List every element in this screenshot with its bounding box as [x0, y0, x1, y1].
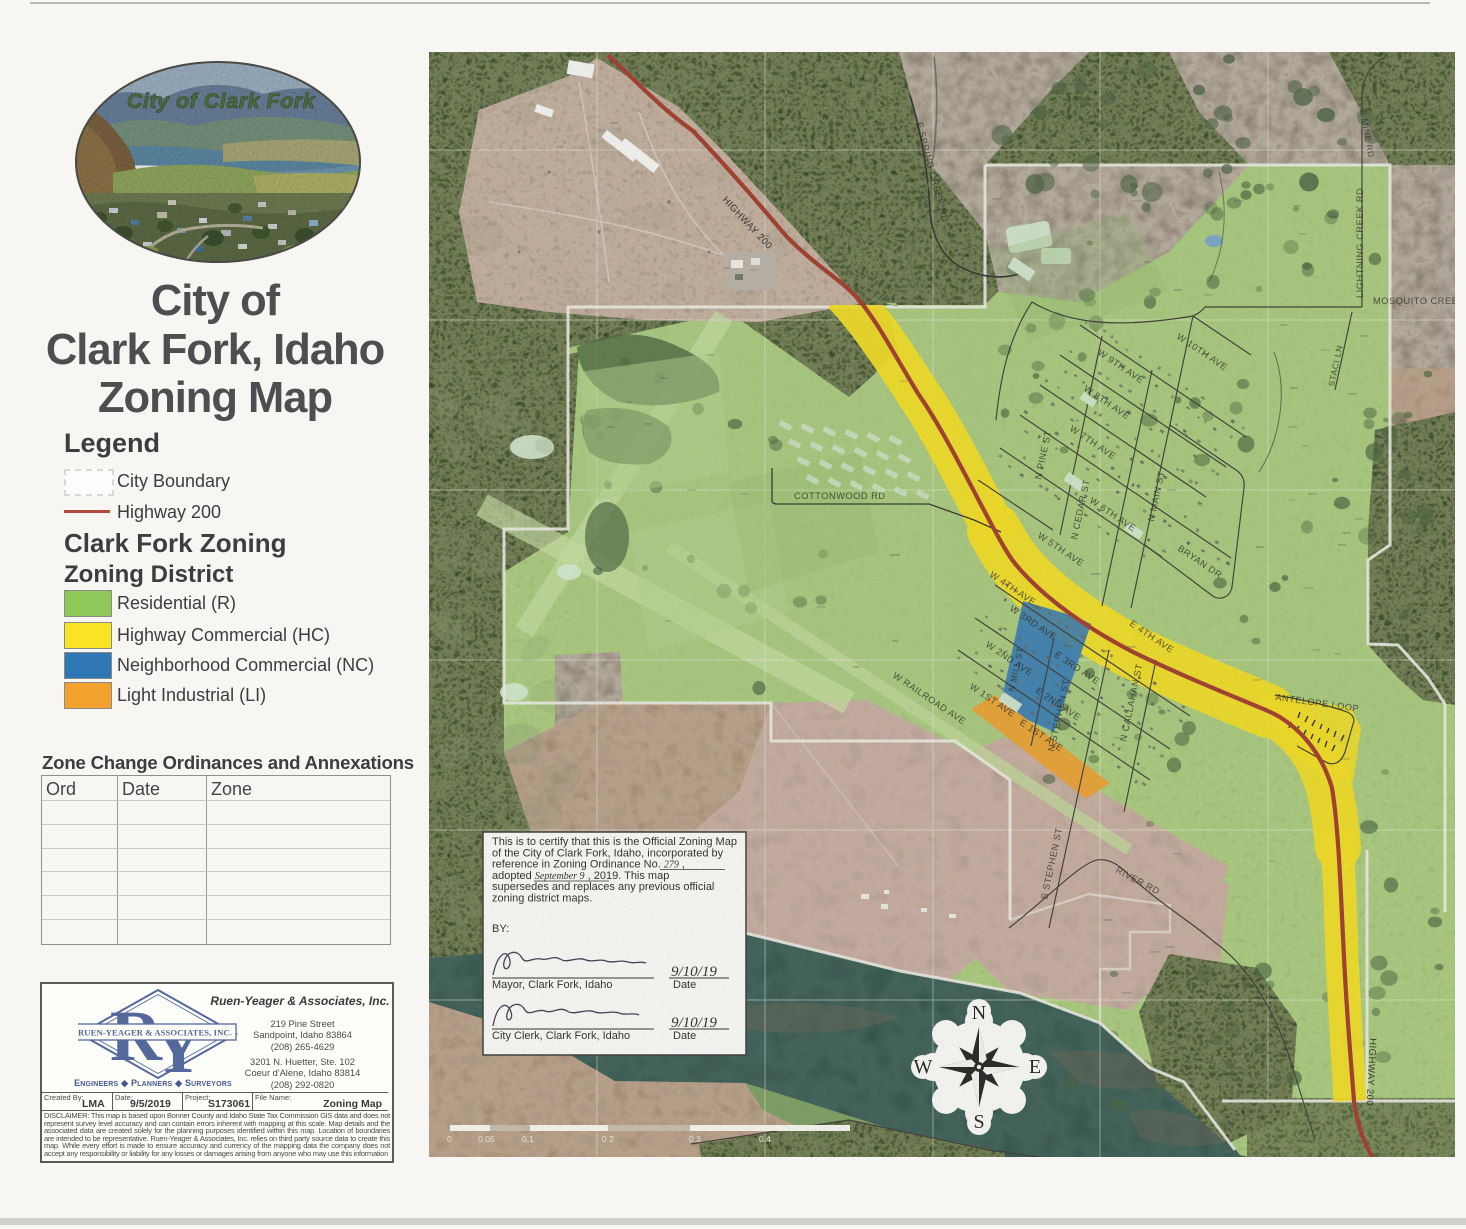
- svg-text:Y: Y: [152, 1008, 203, 1080]
- svg-text:City of Clark Fork: City of Clark Fork: [127, 89, 316, 113]
- svg-text:RUEN-YEAGER & ASSOCIATES, INC.: RUEN-YEAGER & ASSOCIATES, INC.: [78, 1028, 232, 1038]
